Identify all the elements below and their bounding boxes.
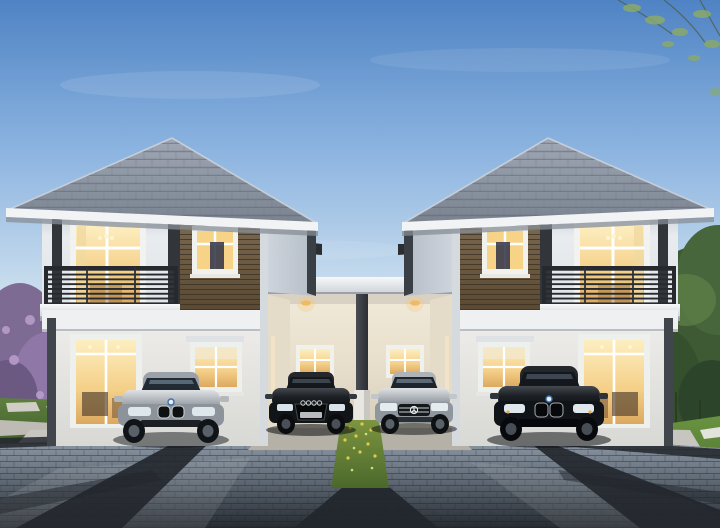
rendered-photo: Architectural dusk rendering: twin two-s… <box>0 0 720 528</box>
wheel-rim <box>506 423 517 435</box>
kidney-grille <box>158 406 170 418</box>
recessed-downlight <box>297 294 315 312</box>
side-mirror <box>490 393 499 399</box>
window-sill <box>190 274 240 278</box>
license-plate <box>300 412 322 418</box>
wheel-rim <box>203 425 214 437</box>
floor-band <box>42 310 268 331</box>
side-mirror <box>265 394 273 399</box>
turn-signal <box>506 410 509 413</box>
side-mirror <box>449 394 457 399</box>
side-mirror <box>220 396 229 402</box>
wheel-rim <box>282 419 291 429</box>
bmw-roundel <box>168 399 174 405</box>
cloud <box>60 71 320 99</box>
kidney-grille <box>550 403 563 417</box>
glass-reflection <box>526 374 573 379</box>
lower-intake <box>518 419 580 427</box>
cloud <box>370 48 670 72</box>
wheel-rim <box>436 419 445 429</box>
bmw-roundel <box>546 396 552 402</box>
headlight <box>128 407 151 416</box>
headlight <box>380 403 397 411</box>
side-mirror <box>114 396 123 402</box>
inner-corner-strip <box>260 220 268 446</box>
headlight <box>329 404 345 411</box>
glass-reflection <box>396 379 433 383</box>
interior-desk <box>82 392 108 416</box>
glass-reflection <box>292 379 331 383</box>
kidney-grille <box>172 406 184 418</box>
side-mirror <box>371 394 379 399</box>
corner-trim <box>47 318 56 446</box>
turn-signal <box>588 410 591 413</box>
scene-canvas: Architectural dusk rendering: twin two-s… <box>0 0 720 528</box>
glass-reflection <box>149 380 194 384</box>
wheel-rim <box>129 425 140 437</box>
recessed-downlight <box>406 294 424 312</box>
side-mirror <box>349 394 357 399</box>
kidney-grille <box>535 403 548 417</box>
side-mirror <box>599 393 608 399</box>
interior-silhouette <box>210 242 224 269</box>
headlight <box>192 407 215 416</box>
wheel-rim <box>582 423 593 435</box>
balcony-railing <box>44 266 178 307</box>
carport-column <box>354 294 370 426</box>
wheel-rim <box>386 419 395 429</box>
headlight <box>431 403 448 411</box>
awning <box>186 336 244 342</box>
wheel-rim <box>332 419 341 429</box>
stepping-stone <box>6 402 40 412</box>
headlight <box>277 404 293 411</box>
lower-intake <box>140 420 202 427</box>
